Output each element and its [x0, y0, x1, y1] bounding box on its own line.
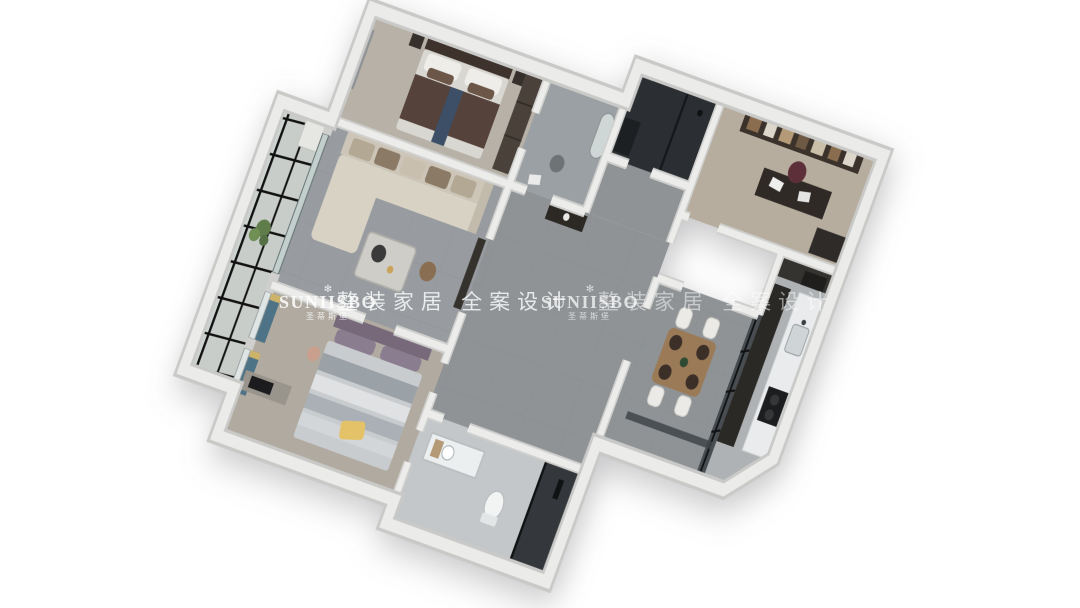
- yellow-pillow: [339, 420, 366, 440]
- watermark-tagline: 整装家居 全案设计: [337, 290, 573, 314]
- desk-paper: [797, 191, 811, 202]
- render-canvas: ✻ SUNIISBO 圣蒂斯堡 整装家居 全案设计 ✻ SUNIISBO 圣蒂斯…: [0, 0, 1080, 608]
- floorplan-svg: ✻ SUNIISBO 圣蒂斯堡 整装家居 全案设计 ✻ SUNIISBO 圣蒂斯…: [0, 0, 1080, 608]
- watermark-tagline: 整装家居 全案设计: [598, 290, 834, 314]
- paper-on-floor: [528, 174, 542, 185]
